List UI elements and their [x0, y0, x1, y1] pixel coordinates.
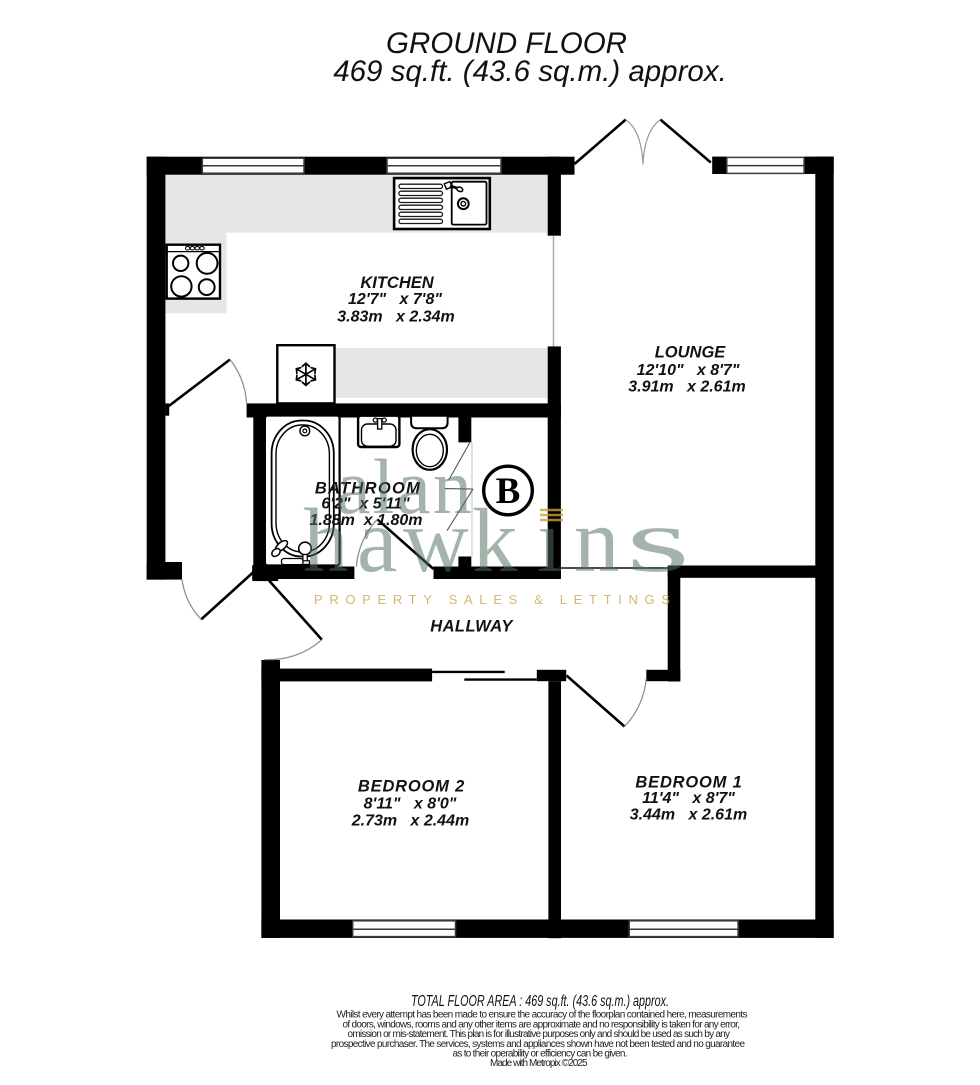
svg-text:3.91m x 2.61m: 3.91m x 2.61m	[628, 379, 745, 396]
svg-text:BEDROOM 1: BEDROOM 1	[635, 773, 742, 791]
svg-text:KITCHEN: KITCHEN	[360, 274, 434, 292]
svg-text:3.44m x 2.61m: 3.44m x 2.61m	[630, 807, 747, 824]
svg-text:PROPERTY SALES & LETTINGS: PROPERTY SALES & LETTINGS	[314, 592, 676, 607]
svg-text:hawkıns: hawkıns	[303, 490, 690, 591]
svg-text:TOTAL FLOOR AREA : 469 sq.ft.: TOTAL FLOOR AREA : 469 sq.ft. (43.6 sq.m…	[411, 993, 669, 1010]
svg-text:11'4" x 8'7": 11'4" x 8'7"	[642, 790, 735, 807]
svg-text:LOUNGE: LOUNGE	[655, 344, 727, 362]
svg-text:8'11" x 8'0": 8'11" x 8'0"	[364, 795, 457, 812]
svg-text:3.83m x 2.34m: 3.83m x 2.34m	[337, 309, 454, 326]
svg-text:Made with Metropix ©2025: Made with Metropix ©2025	[490, 1058, 588, 1069]
svg-text:12'7" x 7'8": 12'7" x 7'8"	[348, 291, 442, 308]
svg-text:HALLWAY: HALLWAY	[430, 618, 514, 636]
svg-text:2.73m x 2.44m: 2.73m x 2.44m	[351, 812, 469, 829]
svg-text:12'10" x 8'7": 12'10" x 8'7"	[637, 362, 740, 379]
svg-text:469 sq.ft. (43.6 sq.m.) approx: 469 sq.ft. (43.6 sq.m.) approx.	[333, 55, 727, 88]
svg-text:BEDROOM 2: BEDROOM 2	[358, 778, 465, 796]
